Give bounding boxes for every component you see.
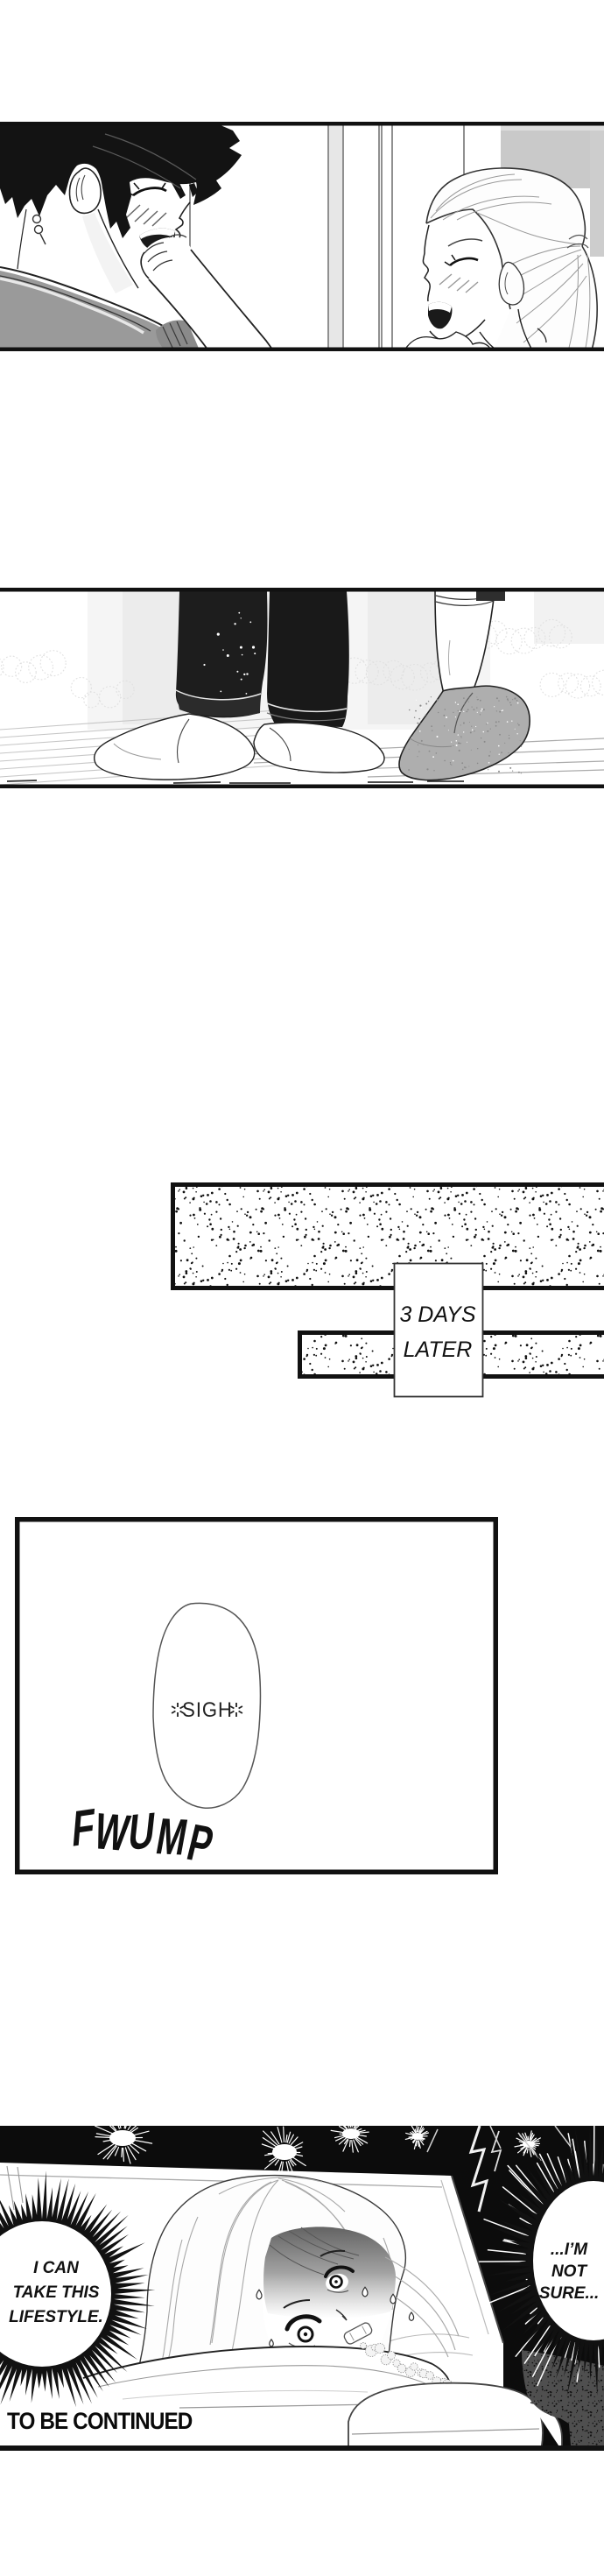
svg-text:SURE...: SURE... [539, 2284, 600, 2303]
svg-text:LIFESTYLE.: LIFESTYLE. [9, 2308, 103, 2326]
svg-text:SIGH: SIGH [182, 1697, 233, 1721]
svg-text:TO BE CONTINUED: TO BE CONTINUED [7, 2409, 193, 2434]
svg-text:NOT: NOT [551, 2262, 588, 2281]
svg-text:I CAN: I CAN [33, 2259, 80, 2277]
svg-text:3 DAYS: 3 DAYS [399, 1302, 475, 1327]
svg-text:LATER: LATER [404, 1337, 473, 1362]
svg-text:TAKE THIS: TAKE THIS [13, 2283, 100, 2302]
svg-text:...I’M: ...I’M [551, 2241, 588, 2259]
